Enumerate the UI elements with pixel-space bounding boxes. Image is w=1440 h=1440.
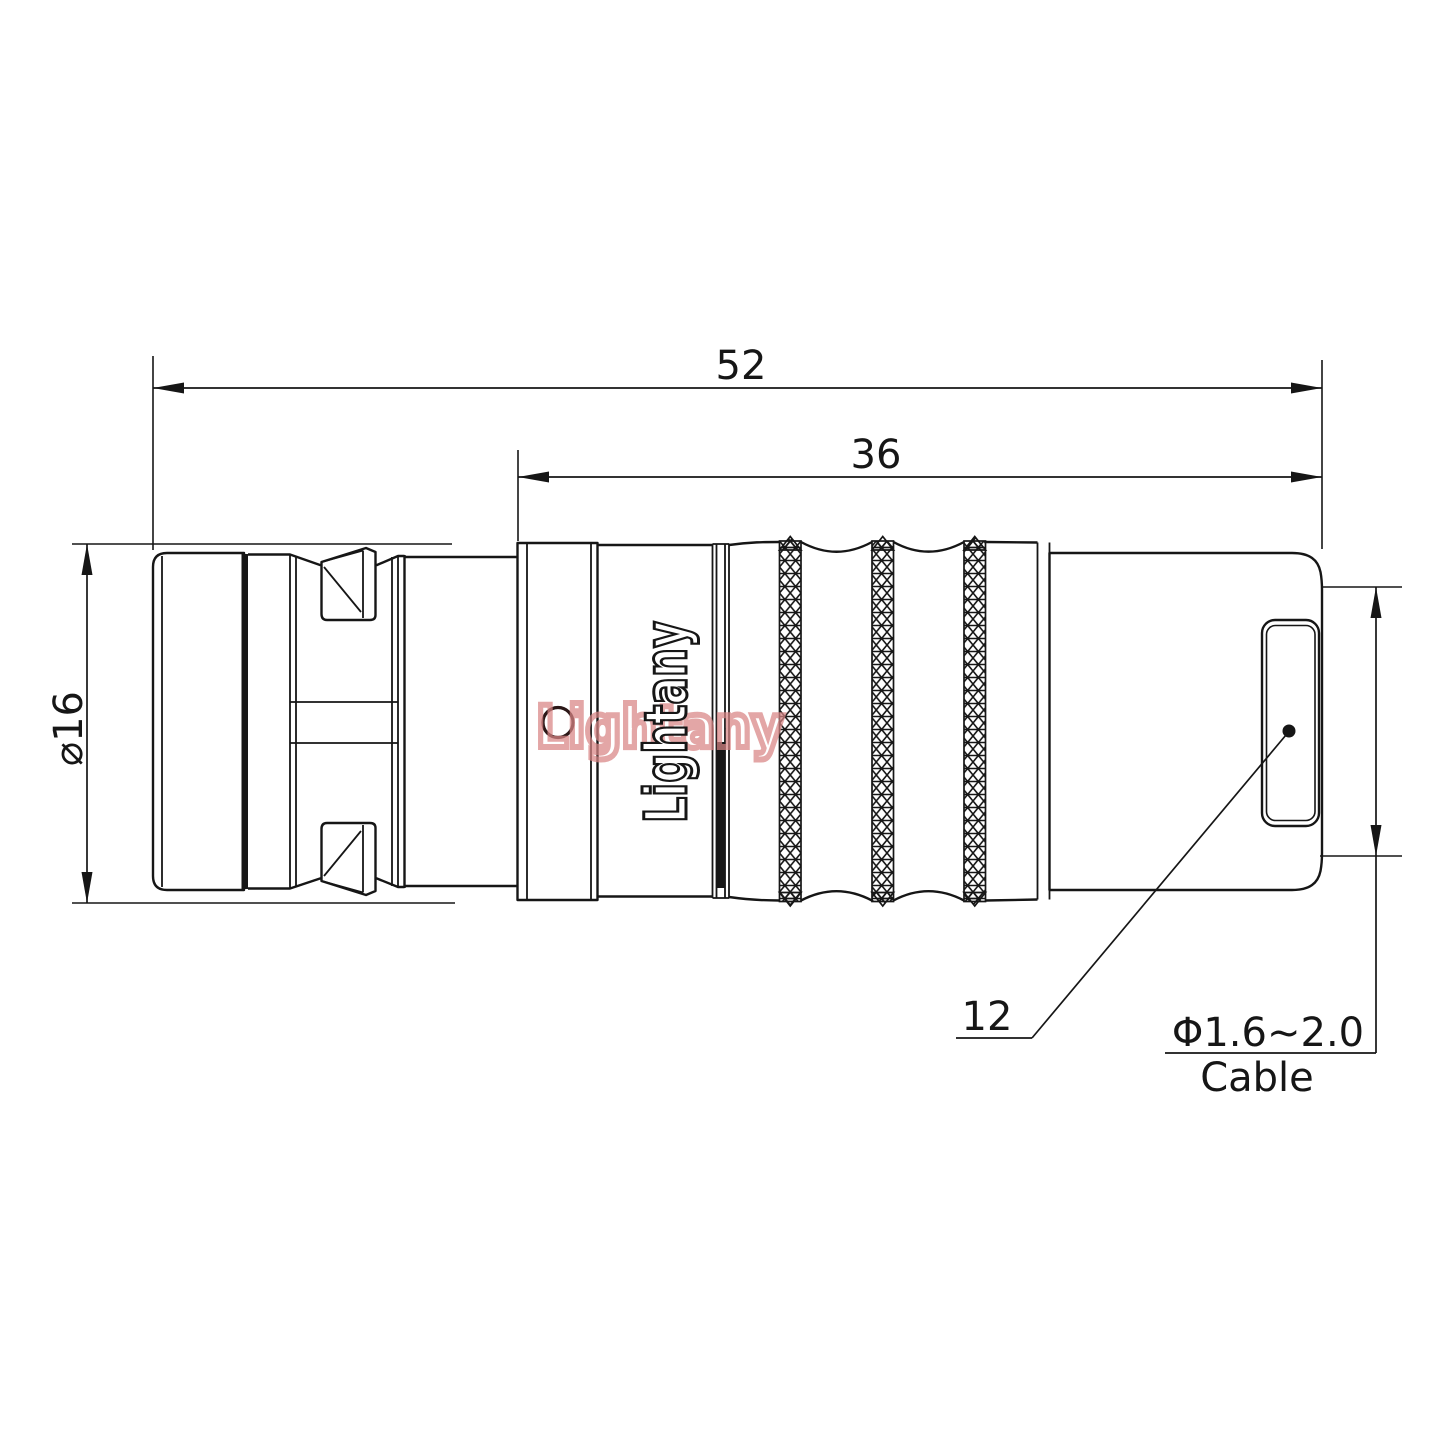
dim-cable-arrow-bottom — [1371, 825, 1382, 856]
connector-dimension-drawing: Lightany Lightany 52 36 ⌀16 Φ1.6~2.0 Cab… — [0, 0, 1440, 1440]
knurl-band-2 — [872, 537, 894, 907]
dim-d16-arrow-top — [82, 544, 93, 575]
spacer-ring-shadow — [717, 742, 726, 888]
dim-d16-arrow-bottom — [82, 872, 93, 903]
dim-52-value: 52 — [716, 343, 767, 389]
label-12-value: 12 — [962, 994, 1013, 1040]
cable-word-label: Cable — [1200, 1055, 1314, 1101]
latch-ear-top-outline — [322, 548, 376, 620]
latch-slot — [290, 702, 398, 743]
latch-ear-bottom-outline — [322, 823, 376, 895]
logo-text-vertical: Lightany — [632, 621, 700, 823]
knurl-band-3-body — [964, 541, 986, 902]
knurl-band-2-body — [872, 541, 894, 902]
latch-ear-top — [322, 548, 376, 620]
dimension-36: 36 — [518, 432, 1322, 541]
cable-recess — [1262, 620, 1319, 826]
cable-recess-outer — [1262, 620, 1319, 826]
mid-body-edges — [405, 557, 518, 886]
dim-d16-value: ⌀16 — [46, 691, 92, 766]
knurl-band-3 — [964, 537, 986, 907]
dim-36-arrow-left — [518, 472, 549, 483]
knurl-right-edges — [1038, 543, 1050, 900]
mid-body — [405, 557, 518, 886]
sleeve-window-left-edges — [290, 556, 296, 888]
dim-52-arrow-right — [1291, 383, 1322, 394]
sleeve-window-right-edges — [392, 556, 398, 887]
front-cap — [153, 553, 248, 890]
latch-ear-bottom — [322, 823, 376, 895]
front-cap-groove — [242, 554, 249, 889]
dim-36-value: 36 — [851, 432, 902, 478]
front-cap-outline — [153, 553, 244, 890]
dim-52-arrow-left — [153, 383, 184, 394]
dimension-diameter-16: ⌀16 — [46, 544, 455, 903]
dim-36-arrow-right — [1291, 472, 1322, 483]
rear-sleeve — [1050, 553, 1323, 890]
dimension-52: 52 — [153, 343, 1322, 550]
dim-cable-arrow-top — [1371, 587, 1382, 618]
coupling-sleeve — [248, 548, 405, 895]
drawing-canvas: Lightany Lightany 52 36 ⌀16 Φ1.6~2.0 Cab… — [0, 0, 1440, 1440]
cable-range-label: Φ1.6~2.0 — [1172, 1010, 1364, 1056]
